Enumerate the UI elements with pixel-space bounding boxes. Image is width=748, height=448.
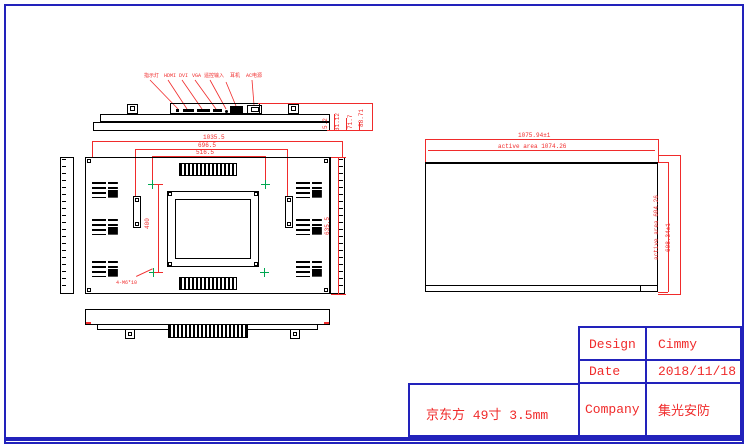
- dvi-port: [197, 109, 210, 112]
- company-value: 集光安防: [658, 400, 710, 419]
- vent-grille-right-1: [296, 182, 322, 198]
- vent-grille-left-2: [92, 219, 118, 235]
- front-panel-corner-block: [640, 285, 658, 292]
- back-dim-height-outer: 635.5: [324, 217, 331, 235]
- front-vdim-outer-line: [680, 155, 681, 294]
- bottom-foot-left-hole: [128, 332, 132, 336]
- power-switch: [230, 106, 243, 114]
- mount-plate-inner: [175, 199, 251, 259]
- back-dim-width-vesa: 516.5: [196, 149, 214, 156]
- corner-screw-tl: [87, 159, 91, 163]
- front-dim-line-active: [428, 150, 655, 151]
- depth-dim-2: 31.12: [334, 113, 341, 131]
- bottom-corner-mark-right: [324, 322, 329, 324]
- front-panel-chin-line: [425, 285, 658, 286]
- corner-screw-tr: [324, 159, 328, 163]
- hole-callout-label: 4-M6*10: [116, 280, 137, 286]
- back-vdim-vesa-line: [158, 184, 159, 272]
- date-value: 2018/11/18: [658, 364, 736, 379]
- back-dim-ext-outer-l: [92, 141, 93, 157]
- bracket-left-hatch: [62, 159, 66, 292]
- front-dim-ext-outer-r: [658, 139, 659, 162]
- front-dim-ext-outer-l: [425, 139, 426, 162]
- ac-inlet-inner: [251, 107, 259, 112]
- indicator-led: [176, 109, 179, 112]
- plate-screw-bl: [168, 262, 172, 266]
- hdmi-port: [183, 109, 194, 112]
- title-block-divider-row2: [580, 382, 740, 384]
- back-vdim-outer-line: [338, 157, 339, 294]
- part-label-text: 京东方 49寸 3.5mm: [426, 404, 548, 423]
- front-vdim-active-tick-top: [658, 162, 668, 163]
- depth-dim-3: 71.7: [347, 115, 354, 129]
- depth-dim-4: 88.71: [358, 109, 365, 127]
- profile-body-lower: [93, 122, 330, 131]
- design-value: Cimmy: [658, 337, 697, 352]
- depth-dim-line-right: [372, 103, 373, 131]
- date-label: Date: [589, 364, 620, 379]
- mount-tab-right-hole: [291, 106, 296, 111]
- back-dim-width-outer: 1035.5: [203, 134, 225, 141]
- corner-screw-bl: [87, 288, 91, 292]
- handle-left-bottom-hole: [135, 222, 139, 226]
- back-dim-ext-outer-r: [342, 141, 343, 157]
- title-block: Design Cimmy Date 2018/11/18 Company 集光安…: [578, 326, 742, 437]
- front-dim-height-outer: 608.34±1: [665, 223, 672, 252]
- vesa-hole-marker-tr: [261, 180, 270, 189]
- handle-right-top-hole: [287, 198, 291, 202]
- title-block-divider-row1: [580, 359, 740, 361]
- back-vdim-vesa-tick-top: [154, 184, 163, 185]
- front-dim-width-outer: 1075.94±1: [518, 132, 550, 139]
- front-dim-width-active: active area 1074.26: [498, 143, 566, 150]
- mount-tab-left-hole: [130, 106, 135, 111]
- back-dim-width-mid: 696.5: [198, 142, 216, 149]
- part-label-box: 京东方 49寸 3.5mm: [408, 383, 580, 437]
- vent-grille-right-2: [296, 219, 322, 235]
- bottom-corner-mark-left: [86, 322, 91, 324]
- profile-body-upper: [100, 114, 330, 122]
- company-label: Company: [585, 402, 640, 417]
- design-label: Design: [589, 337, 636, 352]
- handle-right-bottom-hole: [287, 222, 291, 226]
- vent-bottom-center: [179, 277, 237, 290]
- plate-screw-tr: [254, 192, 258, 196]
- plate-screw-br: [254, 262, 258, 266]
- vent-grille-left-3: [92, 261, 118, 277]
- corner-screw-br: [324, 288, 328, 292]
- bottom-vent-grille: [168, 324, 248, 338]
- front-vdim-outer-tick-bottom: [658, 294, 681, 295]
- bottom-foot-right-hole: [293, 332, 297, 336]
- back-vdim-outer-tick-bottom: [331, 294, 346, 295]
- vga-port: [213, 109, 222, 112]
- bottom-profile-body: [85, 309, 330, 325]
- vesa-hole-marker-br: [260, 268, 269, 277]
- back-vdim-vesa-tick-bottom: [154, 272, 163, 273]
- plate-screw-tl: [168, 192, 172, 196]
- page-border-bottom-band: [6, 437, 742, 441]
- front-vdim-active-tick-bottom: [658, 292, 668, 293]
- front-dim-line-outer: [425, 139, 658, 140]
- drawing-sheet: 指示灯 HDMI DVI VGA 遥控输入 耳机 AC电源: [0, 0, 748, 448]
- vent-top-center: [179, 163, 237, 176]
- vent-grille-left-1: [92, 182, 118, 198]
- back-dim-line-outer: [92, 141, 342, 142]
- back-dim-height-vesa: 400: [144, 218, 151, 229]
- front-dim-height-active: active area 604.26: [653, 195, 660, 260]
- depth-dim-line-top: [258, 103, 372, 104]
- depth-dim-1: 5.2: [322, 118, 329, 129]
- bracket-right-hatch: [339, 159, 343, 292]
- handle-left-top-hole: [135, 198, 139, 202]
- back-vdim-outer-tick-top: [331, 157, 346, 158]
- vent-grille-right-3: [296, 261, 322, 277]
- front-panel: [425, 162, 658, 292]
- audio-jack: [225, 110, 228, 113]
- front-vdim-outer-tick-top: [658, 155, 681, 156]
